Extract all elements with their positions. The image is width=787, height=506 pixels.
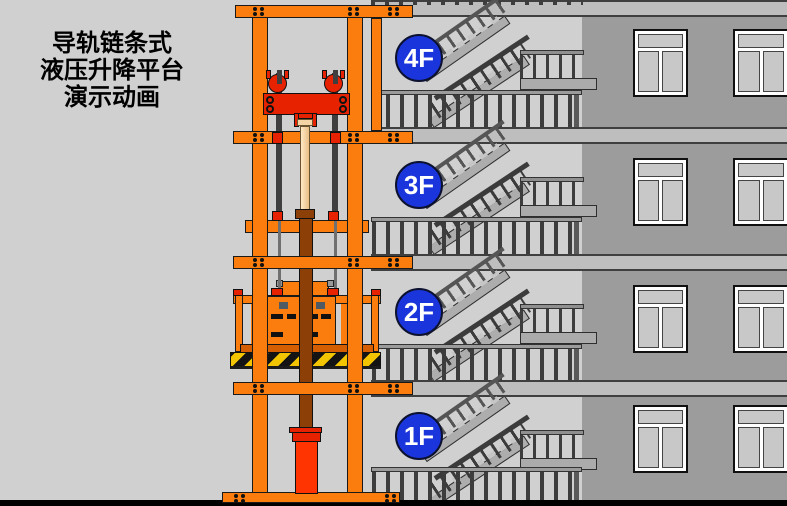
window-pane (763, 307, 785, 348)
balustrade-balusters (372, 95, 581, 127)
head-bolt (339, 96, 347, 104)
rod-rail-anchor (271, 288, 283, 296)
window-transom (638, 290, 683, 304)
half-landing (520, 78, 597, 90)
floor-balustrade (371, 467, 582, 500)
floor-slab (371, 254, 787, 271)
sprocket-cap (284, 70, 289, 79)
cargo-slot (287, 314, 296, 319)
sprocket-cap (266, 70, 271, 79)
floor-badge-1f: 1F (395, 412, 443, 460)
railing-corner-cap (371, 289, 381, 296)
cargo-cap (327, 280, 334, 287)
bolt-group (388, 384, 392, 388)
bolt-group (348, 7, 352, 11)
floor-badge-3f: 3F (395, 161, 443, 209)
window-transom (738, 163, 784, 177)
head-bolt (266, 105, 274, 113)
chain-anchor (328, 211, 339, 221)
half-landing (520, 332, 597, 344)
bolt-group (253, 7, 257, 11)
page-title: 导轨链条式 液压升降平台 演示动画 (14, 30, 210, 111)
rod-guide-clamp (272, 132, 283, 144)
window-pane (662, 307, 683, 348)
floor-badge-4f: 4F (395, 34, 443, 82)
window-panes (638, 307, 683, 348)
floor-balustrade (371, 344, 582, 380)
railing-corner-cap (233, 289, 243, 296)
cargo-patch (316, 302, 325, 309)
bolt-group (388, 133, 392, 137)
window-pane (662, 51, 683, 92)
landing-balusters (520, 435, 584, 458)
crossbeam-1f (233, 382, 413, 395)
window-panes (638, 427, 683, 468)
piston-rod-cap (297, 119, 313, 126)
window-panes (738, 307, 784, 348)
window (733, 285, 787, 353)
bolt-group (385, 494, 389, 498)
demo-canvas: 导轨链条式 液压升降平台 演示动画 4F (0, 0, 787, 506)
window-pane (763, 180, 785, 221)
window-pane (738, 307, 760, 348)
floor-section-2f: 2F (371, 271, 582, 380)
window-pane (662, 427, 683, 468)
window (633, 29, 688, 97)
landing-balusters (520, 182, 584, 205)
window-transom (638, 34, 683, 48)
landing-balusters (520, 309, 584, 332)
window-transom (738, 34, 784, 48)
balustrade-balusters (372, 222, 581, 254)
chain-over-sprocket-left (277, 70, 282, 84)
bolt-group (348, 258, 352, 262)
window-pane (638, 180, 659, 221)
window-pane (662, 180, 683, 221)
half-landing (520, 205, 597, 217)
cargo-patch (279, 302, 288, 309)
window-pane (763, 51, 785, 92)
cargo-slot (321, 314, 331, 319)
window (733, 29, 787, 97)
window (633, 285, 688, 353)
window-pane (738, 180, 760, 221)
window-pane (738, 51, 760, 92)
cargo-slot (271, 332, 283, 337)
floor-section-1f: 1F (371, 397, 582, 500)
floor-balustrade (371, 90, 582, 127)
window-panes (738, 180, 784, 221)
floor-section-4f: 4F (371, 17, 582, 127)
frame-post-wall (371, 18, 382, 131)
window (633, 405, 688, 473)
title-line-1: 导轨链条式 (14, 30, 210, 57)
bolt-group (348, 384, 352, 388)
window (633, 158, 688, 226)
bolt-group (253, 258, 257, 262)
title-line-3: 演示动画 (14, 84, 210, 111)
floor-section-3f: 3F (371, 144, 582, 254)
bolt-group (253, 384, 257, 388)
head-bolt (339, 105, 347, 113)
crossbeam-3f (233, 131, 413, 144)
window-transom (738, 290, 784, 304)
bolt-group (234, 494, 238, 498)
head-bolt (266, 96, 274, 104)
frame-post-right (347, 5, 363, 503)
rod-guide-clamp (330, 132, 341, 144)
sprocket-cap (340, 70, 345, 79)
balustrade-balusters (372, 472, 581, 500)
window-panes (738, 51, 784, 92)
window-panes (638, 180, 683, 221)
chain-over-sprocket-right (333, 70, 338, 84)
cargo-slot (271, 314, 283, 319)
window-panes (738, 427, 784, 468)
hydraulic-cylinder (295, 441, 318, 494)
window-pane (738, 427, 760, 468)
chain-anchor (272, 211, 283, 221)
bolt-group (388, 7, 392, 11)
window-pane (763, 427, 785, 468)
column-cap (295, 209, 315, 219)
balustrade-balusters (372, 349, 581, 380)
landing-balusters (520, 55, 584, 78)
window-pane (638, 427, 659, 468)
title-line-2: 液压升降平台 (14, 57, 210, 84)
bolt-group (253, 133, 257, 137)
bolt-group (388, 258, 392, 262)
window-pane (638, 51, 659, 92)
window-panes (638, 51, 683, 92)
floor-slab (371, 127, 787, 144)
rod-rail-anchor (327, 288, 339, 296)
piston-rod (300, 126, 310, 212)
lifting-column (299, 218, 313, 429)
window-transom (638, 163, 683, 177)
floor-balustrade (371, 217, 582, 254)
floor-badge-2f: 2F (395, 288, 443, 336)
window (733, 158, 787, 226)
window-transom (638, 410, 683, 424)
frame-post-left (252, 5, 268, 503)
sprocket-cap (322, 70, 327, 79)
window-transom (738, 410, 784, 424)
window (733, 405, 787, 473)
crossbeam-2f (233, 256, 413, 269)
bolt-group (348, 133, 352, 137)
cylinder-head-beam (263, 93, 350, 115)
floor-slab (371, 380, 787, 397)
crossbeam-top (235, 5, 413, 18)
window-pane (638, 307, 659, 348)
